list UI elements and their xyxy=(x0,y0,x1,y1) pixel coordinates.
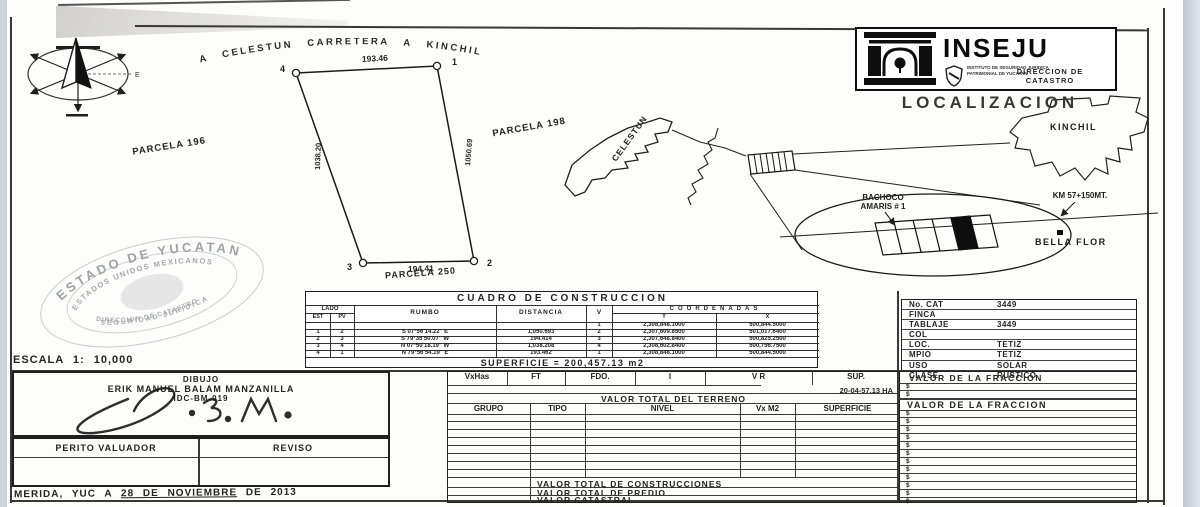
fraccion-title-1: VALOR DE LA FRACCION xyxy=(909,373,1043,383)
fraccion-row: $ xyxy=(899,383,1136,391)
scanned-cadastral-plan: E A CELESTUN CARRETERA A KINCHIL 4 1 2 3… xyxy=(0,0,1200,507)
date-line: MERIDA, YUC A 28 DE NOVIEMBRE DE 2013 xyxy=(14,487,297,500)
fraccion-row: $ xyxy=(899,391,1136,399)
valor-catastral-label: VALOR CATASTRAL xyxy=(537,495,634,505)
col-distancia: DISTANCIA xyxy=(496,309,586,316)
col-est: EST xyxy=(306,314,330,320)
inseju-logo-box: INSEJU INSTITUTO DE SEGURIDAD JURIDICA P… xyxy=(855,27,1117,91)
dibujo-box: DIBUJO ERIK MANUEL BALAM MANZANILLA IDC-… xyxy=(12,371,390,437)
svg-text:1050.69: 1050.69 xyxy=(463,138,474,166)
table-row: 12,308,848.1000500,844.5000 xyxy=(306,322,819,329)
col-vxm2: Vx M2 xyxy=(740,404,795,413)
fraccion-row: $ xyxy=(899,474,1136,482)
magnifier-ellipse xyxy=(795,194,1071,276)
superficie-total: SUPERFICIE = 200,457.13 m2 xyxy=(306,358,819,368)
signature xyxy=(32,379,372,437)
col-vr: V R xyxy=(705,372,812,381)
ficha-row: COL xyxy=(902,330,1136,340)
date-year: DE 2013 xyxy=(246,487,297,498)
shield-icon xyxy=(945,65,963,87)
location-map: CELESTUN xyxy=(540,90,1160,300)
cuadro-title: CUADRO DE CONSTRUCCION xyxy=(306,292,819,305)
reviso-label: REVISO xyxy=(199,443,387,453)
direccion-line1: DIRECCION DE xyxy=(995,67,1105,76)
table-row: 12S 07°56'14.22" E1,050.69322,307,609.85… xyxy=(306,329,819,336)
col-pv: PV xyxy=(330,314,354,320)
scan-margin-left xyxy=(0,0,7,507)
localizacion-title: LOCALIZACION xyxy=(878,93,1102,113)
parcel-box xyxy=(748,151,795,174)
arch-icon xyxy=(864,32,936,86)
svg-text:3: 3 xyxy=(347,262,352,272)
fraccion-row: $ xyxy=(899,450,1136,458)
svg-text:4: 4 xyxy=(280,64,285,74)
col-i: I xyxy=(635,372,705,381)
river-line xyxy=(688,128,718,205)
svg-text:E: E xyxy=(135,72,140,79)
col-vxhas: VxHas xyxy=(447,372,507,381)
col-superficie: SUPERFICIE xyxy=(795,404,900,413)
scan-surface: E A CELESTUN CARRETERA A KINCHIL 4 1 2 3… xyxy=(0,0,1200,507)
svg-text:2: 2 xyxy=(487,258,492,268)
fold-shadow-line xyxy=(58,0,350,6)
parcel-strips xyxy=(875,215,998,255)
ficha-row: TABLAJE3449 xyxy=(902,320,1136,330)
svg-text:BELLA FLOR: BELLA FLOR xyxy=(1035,237,1107,247)
fraccion-row: $ xyxy=(899,466,1136,474)
fraccion-row: $ xyxy=(899,442,1136,450)
empty-grid-rows xyxy=(447,414,900,478)
col-fdo: FDO. xyxy=(565,372,635,381)
col-v: V xyxy=(586,309,612,316)
table-row: 23S 79°35'50.07" W194.41432,307,648.8400… xyxy=(306,336,819,343)
table-row: 34N 07°50'18.19" W1,038.20842,308,602.84… xyxy=(306,343,819,350)
fraccion-title-2: VALOR DE LA FRACCION xyxy=(907,400,1047,410)
date-prefix: MERIDA, YUC A xyxy=(14,488,112,500)
fraccion-row: $ xyxy=(899,418,1136,426)
col-sup: SUP. xyxy=(812,372,900,381)
ficha-row: No. CAT3449 xyxy=(902,300,1136,310)
col-nivel: NIVEL xyxy=(585,404,740,413)
col-tipo: TIPO xyxy=(530,404,585,413)
direccion-line2: CATASTRO xyxy=(995,76,1105,85)
col-x: X xyxy=(716,314,819,320)
svg-text:KINCHIL: KINCHIL xyxy=(1050,122,1097,132)
svg-text:KM 57+150MT.: KM 57+150MT. xyxy=(1053,191,1107,200)
fraccion-row: $ xyxy=(899,410,1136,418)
fraccion-column: VALOR DE LA FRACCION $ $ VALOR DE LA FRA… xyxy=(899,371,1137,503)
fraccion-row: $ xyxy=(899,490,1136,498)
col-y: Y xyxy=(612,314,716,320)
ficha-row: MPIOTETIZ xyxy=(902,350,1136,360)
svg-text:AMARIS # 1: AMARIS # 1 xyxy=(861,202,906,211)
perito-valuador-label: PERITO VALUADOR xyxy=(14,443,198,453)
fraccion-row: $ xyxy=(899,458,1136,466)
svg-text:1038.20: 1038.20 xyxy=(313,143,323,170)
table-row: 41N 79°56'54.19" E193.46212,308,848.1000… xyxy=(306,350,819,357)
compass-rose-icon: E xyxy=(18,26,142,122)
col-rumbo: RUMBO xyxy=(354,309,496,316)
page-border-right-outer xyxy=(1163,8,1165,505)
col-grupo: GRUPO xyxy=(447,404,530,413)
fraccion-row: $ xyxy=(899,426,1136,434)
ficha-row: FINCA xyxy=(902,310,1136,320)
svg-text:1: 1 xyxy=(452,57,457,67)
inseju-name: INSEJU xyxy=(943,33,1049,64)
svg-text:193.46: 193.46 xyxy=(362,53,389,64)
scan-margin-right xyxy=(1183,0,1200,507)
perito-reviso-box: PERITO VALUADOR REVISO xyxy=(12,437,390,487)
col-ft: FT xyxy=(507,372,565,381)
escala-label: ESCALA 1: 10,000 xyxy=(13,354,133,366)
svg-text:CELESTUN: CELESTUN xyxy=(610,114,650,163)
svg-text:A CELESTUN CARRETERA A KINCHIL: A CELESTUN CARRETERA A KINCHIL xyxy=(198,38,483,65)
col-lado: LADO xyxy=(306,306,354,312)
date-day-month: 28 DE NOVIEMBRE xyxy=(121,487,237,499)
ficha-row: LOC.TETIZ xyxy=(902,340,1136,350)
col-coordenadas: COORDENADAS xyxy=(612,306,819,312)
fraccion-row: $ xyxy=(899,482,1136,490)
fraccion-row: $ xyxy=(899,434,1136,442)
fraccion-row: $ xyxy=(899,498,1136,506)
cuadro-construccion-table: CUADRO DE CONSTRUCCION LADO EST PV RUMBO… xyxy=(305,291,818,368)
ficha-catastral: No. CAT3449 FINCA TABLAJE3449 COL LOC.TE… xyxy=(901,299,1137,372)
official-stamp: ESTADO DE YUCATAN ESTADOS UNIDOS MEXICAN… xyxy=(22,232,282,354)
svg-text:BACHOCO: BACHOCO xyxy=(862,193,903,202)
